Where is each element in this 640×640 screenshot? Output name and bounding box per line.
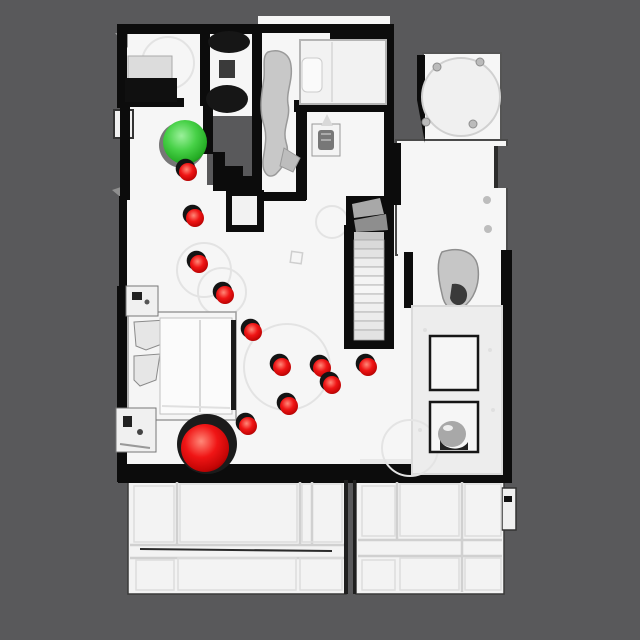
stair-tread — [354, 312, 384, 321]
wall-top — [117, 24, 262, 34]
shiny-object — [438, 421, 466, 447]
wall-annex-b-left — [393, 143, 401, 205]
nightstand-upper — [126, 286, 158, 316]
stair-tread — [354, 258, 384, 267]
patio-gap-edge-right — [353, 480, 356, 594]
stair-tread — [354, 330, 384, 340]
chair-knob — [433, 63, 441, 71]
rug-speckle — [488, 348, 492, 352]
waypoint-sphere — [186, 209, 204, 227]
wall-left-upper — [120, 100, 130, 200]
closet-box — [219, 60, 235, 78]
bed-mattress — [160, 318, 232, 414]
waypoint-sphere — [216, 286, 234, 304]
wall-stairs-left — [344, 225, 354, 345]
chair-knob — [422, 118, 430, 126]
dining-table-upper — [430, 336, 478, 390]
rug-speckle — [423, 328, 427, 332]
goal-sphere — [181, 424, 229, 472]
waypoint-sphere — [359, 358, 377, 376]
wall-bedroom-leg — [296, 108, 307, 200]
bedroom-pillow — [302, 58, 322, 92]
patio-right-floor — [356, 480, 504, 594]
wall-bedroom-top — [256, 24, 336, 33]
stair-tread — [354, 285, 384, 294]
wall-left-mid — [119, 196, 127, 292]
closet-blob — [206, 85, 248, 113]
waypoint-sphere — [280, 397, 298, 415]
shiny-object-highlight — [443, 425, 453, 431]
waypoint-sphere — [273, 358, 291, 376]
waypoint-sphere — [244, 323, 262, 341]
stair-tread — [354, 294, 384, 303]
closet-blob — [208, 31, 250, 53]
annex-b-floor — [396, 140, 507, 255]
nightstand-mark — [123, 416, 132, 427]
floor-dot — [483, 196, 491, 204]
stair-tread — [354, 276, 384, 285]
patio-step — [502, 488, 516, 530]
stair-tread — [354, 249, 384, 258]
patio-gap-edge-left — [344, 480, 348, 594]
stair-tread — [354, 240, 384, 249]
wall-hall-horizontal — [213, 176, 258, 191]
rug-speckle — [418, 428, 422, 432]
waypoint-sphere — [323, 376, 341, 394]
patio-step-mark — [504, 496, 512, 502]
nightstand-mark — [145, 300, 150, 305]
chair-knob — [476, 58, 484, 66]
wall-stairs-bottom — [344, 340, 394, 349]
wall-dining-left-upper — [404, 252, 413, 308]
nightstand-mark — [132, 292, 142, 300]
bathroom-vanity — [125, 78, 177, 102]
chair-knob — [469, 120, 477, 128]
floor-dot — [484, 225, 492, 233]
stair-tread — [354, 267, 384, 276]
bed-crack — [231, 320, 236, 410]
nightstand-mark — [137, 429, 143, 435]
stair-tread — [354, 303, 384, 312]
floorplan-canvas[interactable] — [0, 0, 640, 640]
waypoint-sphere — [190, 255, 208, 273]
start-sphere — [163, 120, 207, 164]
scene-viewport[interactable] — [0, 0, 640, 640]
wall-closet-bedroom-divider — [252, 28, 262, 200]
waypoint-sphere — [239, 417, 257, 435]
annex-b-notch-edge — [494, 146, 498, 188]
stair-tread — [354, 232, 384, 240]
waypoint-sphere — [179, 163, 197, 181]
rug-speckle — [491, 408, 495, 412]
stair-tread — [354, 321, 384, 330]
doorframe-inner — [232, 196, 257, 225]
patio-left-floor — [128, 480, 346, 594]
